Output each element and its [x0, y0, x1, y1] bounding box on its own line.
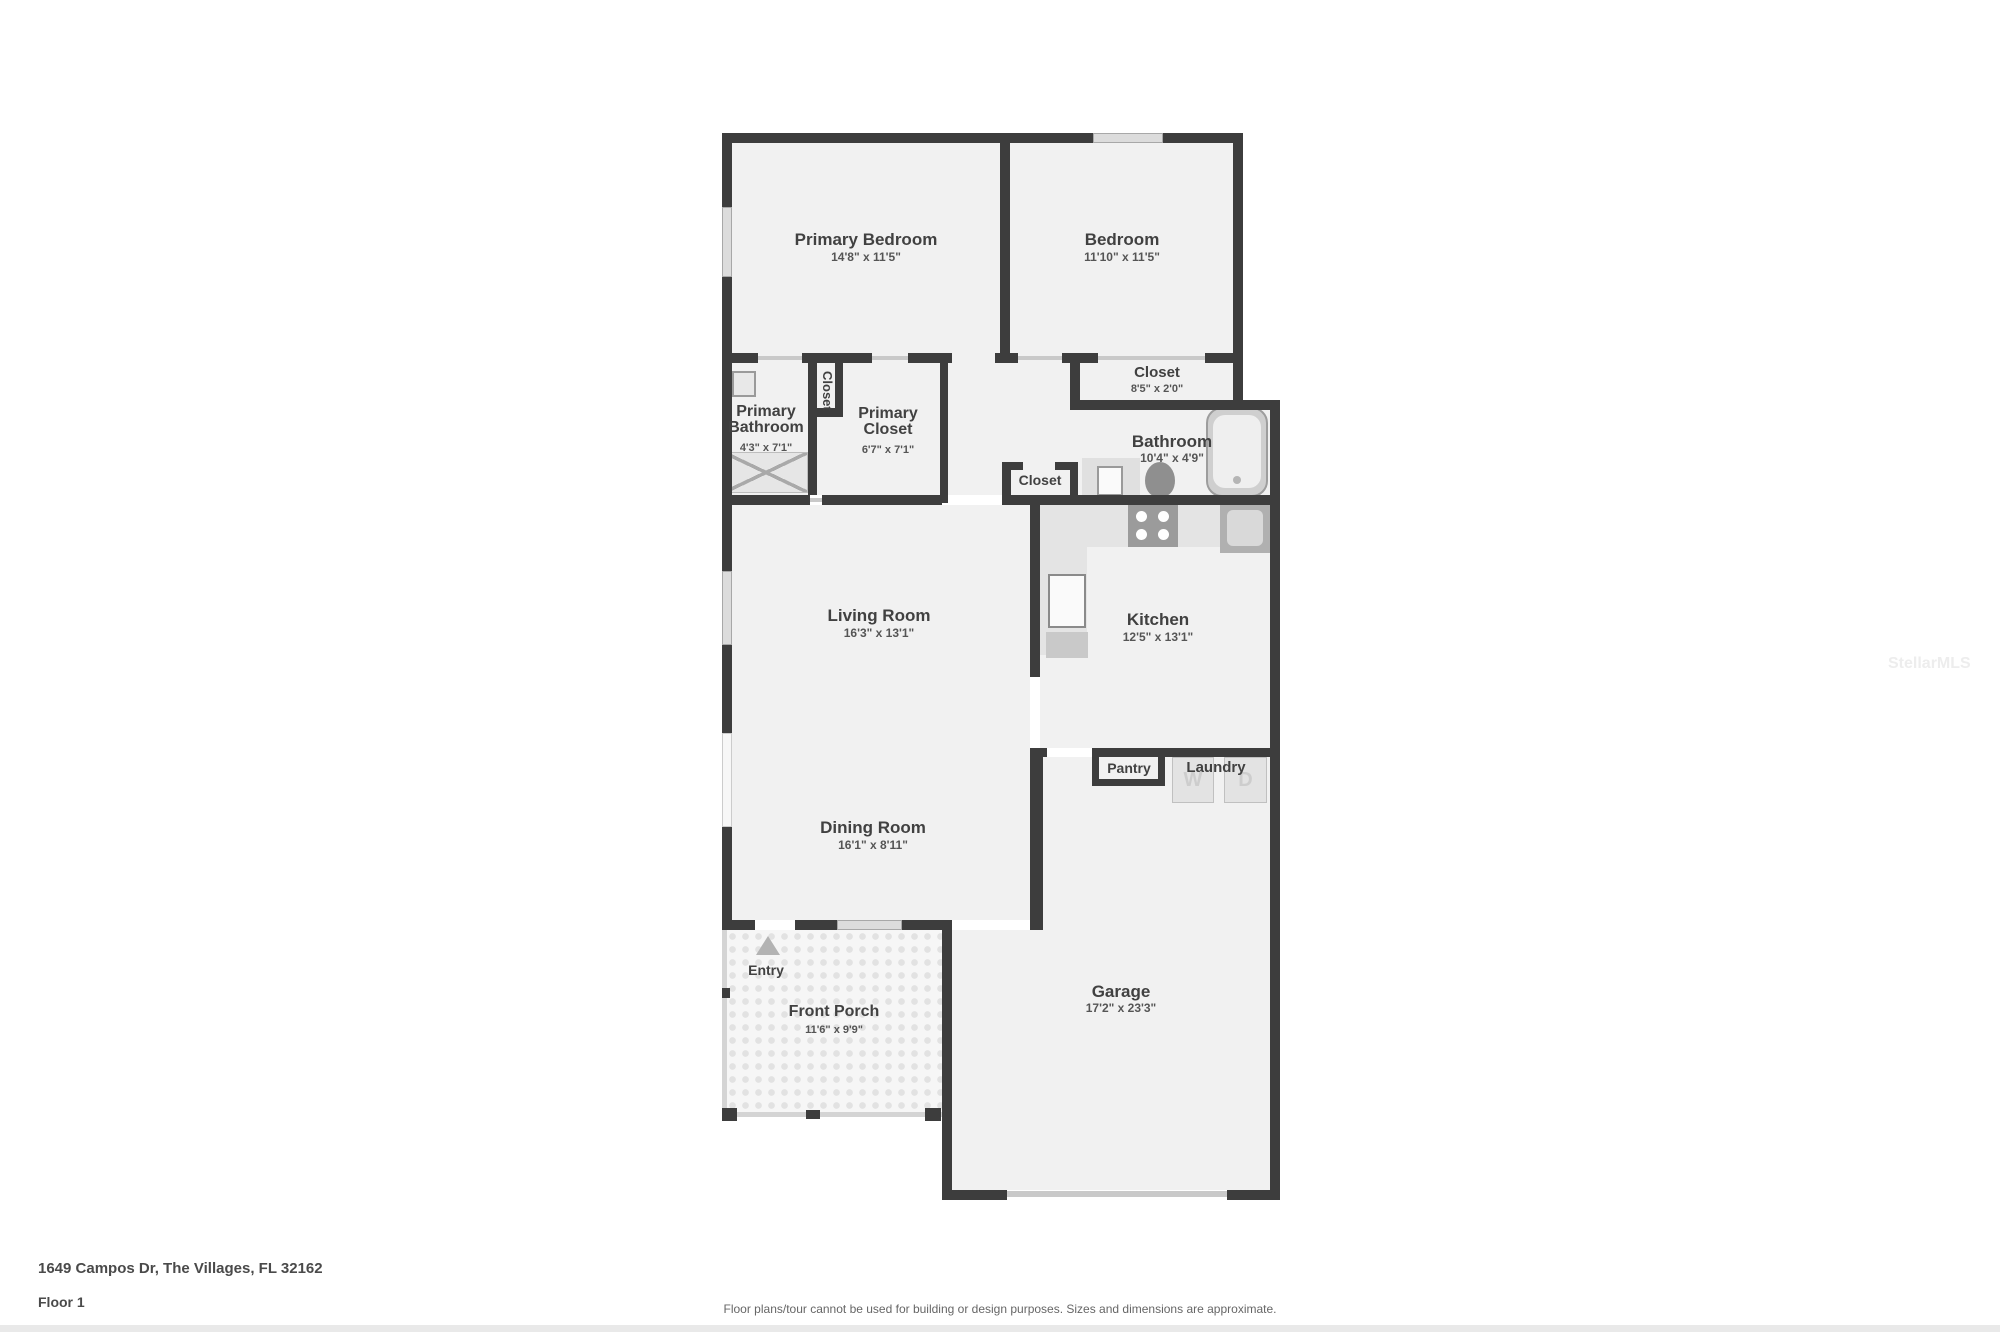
floor-plan-page: W D Primary Bedroom 14'8" x 11'5" Bedroo… — [0, 0, 2000, 1332]
door-bedroom-closet — [1098, 356, 1205, 360]
bathroom-door-icon — [1097, 466, 1123, 496]
stove-icon — [1128, 504, 1178, 547]
wall-garage-bottom-2 — [1227, 1190, 1280, 1200]
dims-garage: 17'2" x 23'3" — [1086, 1002, 1156, 1014]
label-primary-closet: Primary Closet — [836, 406, 940, 438]
wall-right-upper — [1233, 133, 1243, 410]
window-dining-bottom — [837, 920, 902, 930]
dims-front-porch: 11'6" x 9'9" — [805, 1024, 863, 1036]
porch-post-bottom-mid — [806, 1110, 820, 1119]
door-living-room — [810, 498, 822, 502]
label-pantry: Pantry — [1107, 761, 1151, 775]
wall-south-upper-1 — [722, 495, 810, 505]
wall-bathroom-top — [1070, 400, 1280, 410]
wall-hallway-3 — [908, 353, 952, 363]
label-kitchen: Kitchen — [1127, 611, 1189, 628]
dims-kitchen: 12'5" x 13'1" — [1123, 631, 1193, 643]
porch-post-left-mid — [722, 988, 730, 998]
bathroom-pedestal-sink-icon — [1145, 462, 1175, 496]
wall-garage-bottom-1 — [942, 1190, 1007, 1200]
wall-garage-left — [942, 920, 952, 1200]
wall-south-upper-2 — [822, 495, 942, 505]
window-living-room-left — [722, 571, 732, 645]
floor-living-dining — [732, 505, 1030, 920]
label-bedroom: Bedroom — [1085, 231, 1160, 248]
wall-dining-bottom-2 — [795, 920, 837, 930]
label-bathroom: Bathroom — [1132, 433, 1212, 450]
wall-bedroom-closet-left — [1070, 363, 1080, 410]
mls-watermark: StellarMLS — [1888, 655, 1971, 673]
wall-south-upper-3 — [1002, 495, 1280, 505]
kitchen-sink-basin — [1227, 510, 1263, 546]
garage-door — [1007, 1191, 1227, 1197]
stove-burner-2 — [1158, 511, 1169, 522]
porch-rail-left — [722, 930, 727, 1118]
label-front-porch: Front Porch — [789, 1003, 880, 1020]
dims-living-room: 16'3" x 13'1" — [844, 627, 914, 639]
floor-label: Floor 1 — [38, 1294, 85, 1310]
wall-kitchen-bottom-2 — [1092, 748, 1270, 757]
wall-right-main — [1270, 400, 1280, 1200]
bottom-bar — [0, 1325, 2000, 1332]
dims-primary-bathroom: 4'3" x 7'1" — [740, 442, 792, 454]
door-primary-closet — [872, 356, 908, 360]
dishwasher-icon — [1046, 632, 1088, 658]
refrigerator-icon — [1048, 574, 1086, 628]
porch-post-bottom-left — [722, 1108, 737, 1121]
dims-dining-room: 16'1" x 8'11" — [838, 839, 908, 851]
label-dining-room: Dining Room — [820, 819, 926, 836]
entry-arrow-icon — [756, 936, 780, 955]
label-primary-bedroom: Primary Bedroom — [795, 231, 938, 248]
wall-hall-closet-top-1 — [1002, 462, 1023, 470]
primary-bath-shower-icon — [724, 452, 808, 493]
wall-hallway-4 — [995, 353, 1018, 363]
address-text: 1649 Campos Dr, The Villages, FL 32162 — [38, 1260, 323, 1277]
dims-primary-closet: 6'7" x 7'1" — [862, 444, 914, 456]
wall-bedroom-divider — [1000, 143, 1010, 363]
front-porch-tile-floor — [726, 930, 942, 1112]
dims-bedroom: 11'10" x 11'5" — [1084, 251, 1160, 263]
wall-hallway-2 — [802, 353, 872, 363]
dims-bathroom: 10'4" x 4'9" — [1140, 452, 1204, 464]
label-closet-nook: Closet — [820, 367, 834, 415]
label-primary-bathroom: Primary Bathroom — [714, 404, 818, 436]
label-entry: Entry — [748, 963, 784, 977]
stove-burner-3 — [1136, 529, 1147, 540]
label-hall-closet: Closet — [1019, 473, 1062, 487]
wall-primary-closet-right — [940, 363, 948, 503]
wall-hall-closet-right — [1070, 462, 1078, 502]
bathtub-drain — [1233, 476, 1241, 484]
door-primary-suite — [758, 356, 802, 360]
floor-garage — [952, 930, 1270, 1190]
wall-dining-bottom-1 — [722, 920, 755, 930]
wall-top — [722, 133, 1243, 143]
wall-hallway-5 — [1062, 353, 1098, 363]
dims-bedroom-closet: 8'5" x 2'0" — [1131, 383, 1183, 395]
window-primary-bedroom-left — [722, 207, 732, 277]
disclaimer-text: Floor plans/tour cannot be used for buil… — [724, 1302, 1277, 1316]
wall-living-kitchen-divider — [1030, 505, 1040, 677]
label-living-room: Living Room — [828, 607, 931, 624]
label-laundry: Laundry — [1186, 761, 1245, 775]
primary-bath-sink-icon — [732, 371, 756, 397]
dims-primary-bedroom: 14'8" x 11'5" — [831, 251, 901, 263]
wall-pantry-bottom — [1092, 779, 1165, 786]
stove-burner-4 — [1158, 529, 1169, 540]
label-bedroom-closet: Closet — [1134, 364, 1180, 381]
window-bedroom-top — [1093, 133, 1163, 143]
porch-rail-bottom — [722, 1112, 942, 1117]
door-bedroom — [1018, 356, 1062, 360]
stove-burner-1 — [1136, 511, 1147, 522]
porch-post-bottom-right — [925, 1108, 941, 1121]
wall-hallway-6 — [1205, 353, 1243, 363]
wall-dining-right — [1030, 748, 1043, 930]
wall-hallway-1 — [722, 353, 758, 363]
label-garage: Garage — [1092, 983, 1151, 1000]
window-dining-left — [722, 733, 732, 827]
